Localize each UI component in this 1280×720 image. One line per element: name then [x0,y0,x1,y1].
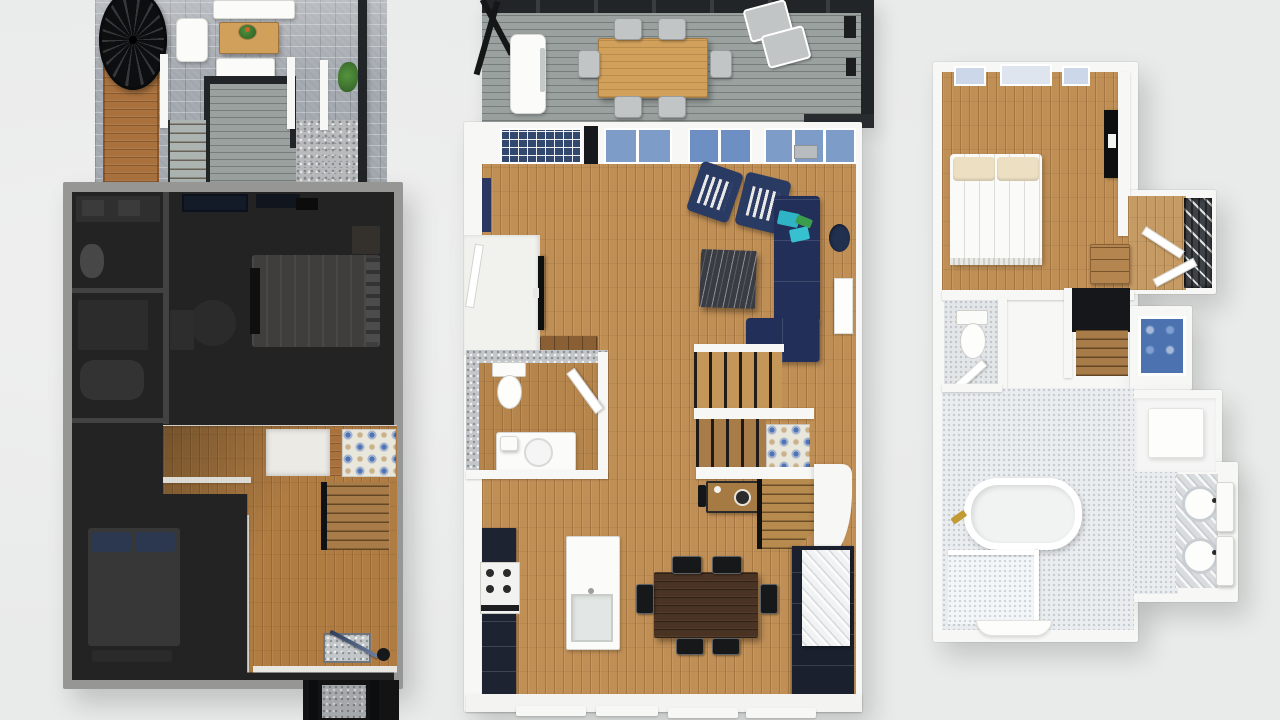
bath-bowed-sill [976,620,1052,636]
bed-pillow [953,157,995,181]
stairwell-void [1072,288,1130,332]
vanity-cabinet-front [1216,482,1234,532]
bed-pillow [997,157,1039,181]
bed-fringe [950,258,1042,265]
vanity-sink [1182,486,1218,522]
closet-hanging-clothes [1184,198,1212,288]
bedroom-window [1062,66,1090,86]
floor-plan-right[interactable] [0,0,1280,720]
freestanding-tub [964,478,1082,550]
right-staircase [1076,330,1128,376]
bedroom-window [1000,64,1052,86]
dresser [1090,244,1130,284]
stair-rail-wall [1064,288,1072,378]
wc-right-wall [998,298,1007,388]
walkin-island [1148,408,1204,458]
wc-toilet-bowl [960,323,986,359]
shower-glass-right [1034,550,1039,624]
bedroom-window [954,66,986,86]
blue-tile-wall-panel [1138,316,1186,376]
floor-plan-scene [0,0,1280,720]
vanity-sink [1182,538,1218,574]
shower-floor [948,554,1038,624]
tv-notch [1108,134,1116,148]
shower-glass-top [948,550,1038,555]
vanity-cabinet-front [1216,536,1234,586]
bath-divider-wall [942,384,1002,392]
vanity-nook-floor [1134,470,1178,594]
